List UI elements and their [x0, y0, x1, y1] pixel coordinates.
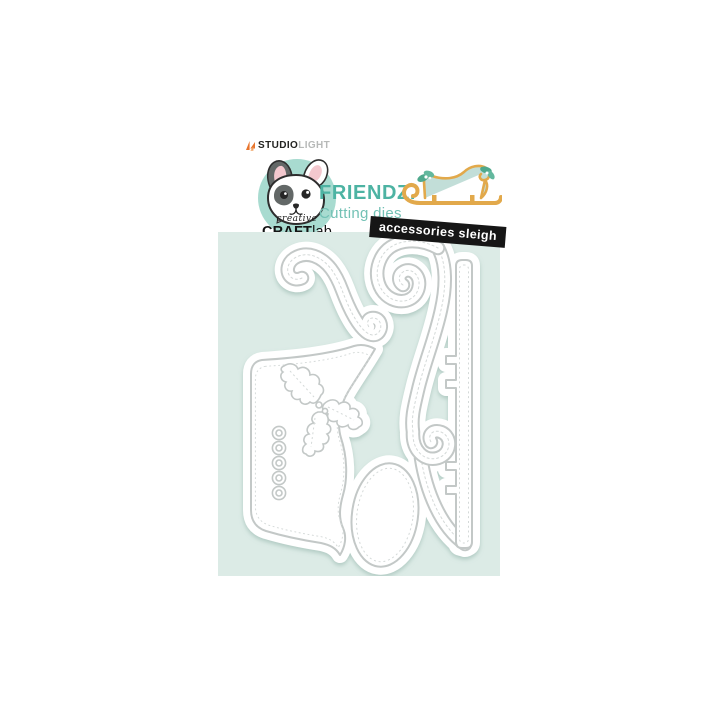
- die-dot-strip: [272, 426, 285, 499]
- die-shapes-graphic: [218, 232, 500, 576]
- studiolight-mark-icon: [246, 141, 255, 151]
- die-panel: [218, 232, 500, 576]
- studiolight-logo: STUDIOLIGHT: [246, 141, 330, 151]
- brand-light: LIGHT: [298, 140, 330, 151]
- brand-studio: STUDIO: [258, 140, 298, 151]
- brand-text: STUDIOLIGHT: [258, 141, 330, 151]
- product-image: STUDIOLIGHT creative CRAFTlab FRIENDZ. C…: [0, 0, 720, 720]
- sleigh-illustration-icon: [398, 157, 502, 215]
